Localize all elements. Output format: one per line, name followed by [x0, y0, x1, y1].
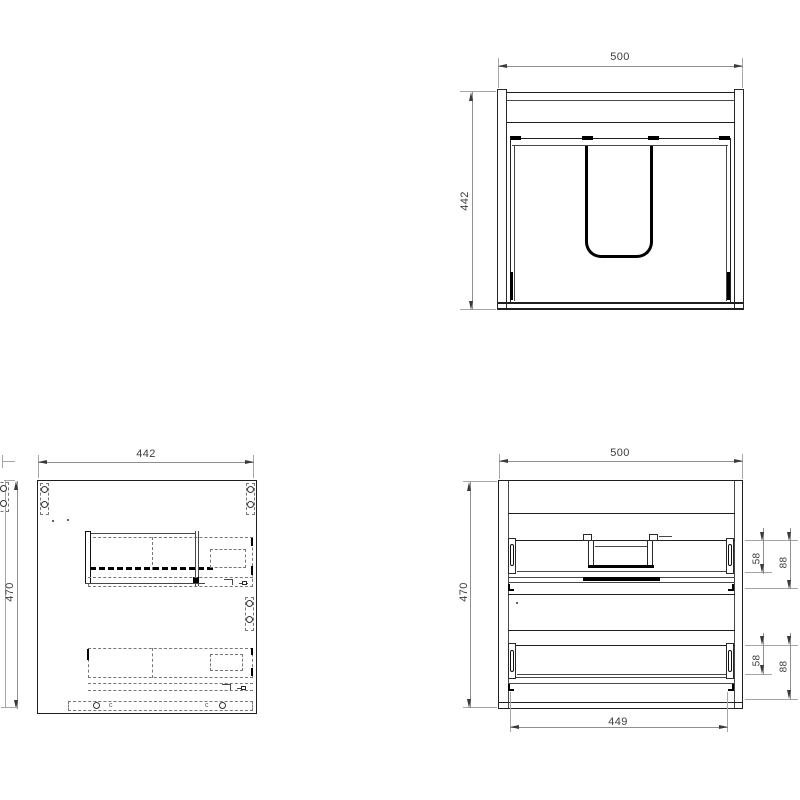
extension-line — [742, 58, 743, 88]
screw-icon — [93, 702, 100, 709]
arrowhead-icon — [469, 301, 473, 310]
runner-top-line — [91, 533, 195, 534]
screw-icon — [0, 500, 7, 507]
corner-mark — [727, 272, 730, 300]
runner-rear-fitting — [210, 654, 243, 671]
pilot-hole — [52, 520, 54, 522]
extension-line — [253, 455, 254, 478]
arrowhead-icon — [719, 725, 728, 729]
extension-tick — [1, 707, 15, 708]
dimension-line — [499, 461, 743, 462]
drawer-rail-line — [508, 582, 735, 583]
fitting-tab — [719, 136, 730, 140]
screw-icon — [247, 501, 254, 508]
screw-icon — [0, 485, 7, 492]
arrowhead-icon — [787, 636, 791, 645]
runner-mark — [251, 566, 253, 575]
cutout-post — [647, 540, 653, 567]
cutout-post — [588, 540, 594, 567]
runner-hardware — [232, 580, 233, 585]
siphon-cutout — [585, 146, 653, 258]
dim-label-height: 470 — [4, 573, 16, 611]
extension-line — [460, 91, 496, 92]
back-rail-line — [507, 92, 735, 93]
side-panel-section — [497, 89, 507, 310]
arrowhead-icon — [467, 482, 471, 491]
fitting-tab — [648, 136, 659, 140]
dimension-line — [38, 462, 254, 463]
runner-hardware — [241, 686, 246, 690]
runner-hardware — [230, 685, 231, 690]
bracket-foot — [508, 689, 514, 691]
cutout-bottom — [588, 565, 654, 568]
dim-label-drawer-span: 449 — [597, 716, 639, 728]
arrowhead-icon — [787, 580, 791, 589]
runner-base-hidden — [88, 577, 253, 578]
dimension-line — [472, 92, 473, 310]
dim-label-width: 500 — [600, 447, 640, 459]
drawer-top-line — [508, 540, 735, 541]
pilot-hole — [516, 602, 518, 604]
arrowhead-icon — [469, 92, 473, 101]
back-rail-line — [507, 122, 735, 123]
dim-label-depth: 442 — [459, 181, 471, 221]
screw-icon — [246, 600, 253, 607]
top-rail-line — [508, 513, 735, 514]
cutout-back-line — [595, 546, 647, 547]
arrowhead-icon — [14, 700, 18, 709]
dim-label-drawer-back: 58 — [752, 546, 763, 572]
screw-icon — [41, 486, 48, 493]
runner-hardware — [242, 581, 247, 585]
arrowhead-icon — [245, 460, 254, 464]
extension-line — [460, 309, 496, 310]
arrowhead-icon — [760, 636, 764, 645]
dimension-line — [17, 481, 18, 709]
divider-line — [508, 594, 735, 595]
extension-line — [499, 454, 500, 479]
drawer-back-bottom — [517, 674, 726, 675]
back-rail-line — [507, 100, 735, 101]
extension-tick — [2, 461, 15, 462]
dim-label-drawer-total: 88 — [779, 550, 790, 576]
divider-line — [508, 630, 735, 631]
dim-label-width: 500 — [600, 51, 640, 63]
dim-label-drawer-back: 58 — [752, 648, 763, 674]
extension-line — [745, 674, 772, 675]
runner-base-hidden — [88, 690, 253, 691]
runner-mark — [251, 668, 253, 676]
drawer-side-line — [514, 145, 515, 301]
bottom-panel-line — [499, 702, 742, 703]
bracket-slot — [510, 650, 514, 672]
arrowhead-icon — [14, 481, 18, 490]
fixing-marker: c — [109, 702, 113, 709]
drawer-side-line — [730, 138, 731, 302]
drawer-back-bottom — [517, 571, 726, 572]
extension-line — [498, 58, 499, 88]
runner-mark — [251, 648, 253, 655]
dimension-line — [470, 482, 471, 708]
runner-mark — [251, 538, 253, 546]
bracket-slot — [510, 544, 514, 566]
bracket-foot — [728, 589, 734, 591]
extension-line — [742, 454, 743, 479]
arrowhead-icon — [467, 699, 471, 708]
extension-tick — [2, 455, 3, 468]
extension-line — [38, 455, 39, 478]
screw-icon — [41, 501, 48, 508]
runner-rear-fitting — [210, 549, 246, 568]
screw-icon — [246, 616, 253, 623]
bracket-foot — [728, 689, 734, 691]
runner-mark — [87, 649, 89, 660]
drawer-edge-line — [510, 138, 730, 139]
screw-icon — [247, 486, 254, 493]
front-edge-line — [498, 302, 743, 304]
extension-line — [745, 572, 772, 573]
drawer-rail-line — [508, 677, 735, 678]
bracket-slot — [728, 544, 732, 566]
arrowhead-icon — [510, 725, 519, 729]
dim-label-depth: 442 — [126, 448, 166, 460]
screw-icon — [219, 702, 226, 709]
arrowhead-icon — [38, 460, 47, 464]
side-panel-section — [734, 89, 744, 310]
fitting-tab — [510, 136, 521, 140]
arrowhead-icon — [760, 532, 764, 541]
dim-label-drawer-total: 88 — [779, 654, 790, 680]
fitting-tab — [582, 136, 593, 140]
arrowhead-icon — [499, 459, 508, 463]
dim-label-height: 470 — [458, 573, 470, 611]
runner-divider-hidden — [152, 648, 153, 678]
arrowhead-icon — [787, 532, 791, 541]
drawer-top-line — [508, 645, 735, 646]
pilot-hole — [67, 519, 69, 521]
arrowhead-icon — [734, 64, 743, 68]
bracket-foot — [508, 589, 514, 591]
cabinet-outline — [37, 480, 257, 714]
bracket-slot — [728, 650, 732, 672]
dimension-line — [498, 66, 743, 67]
front-edge-line — [498, 308, 743, 310]
cutout-edge-line — [659, 536, 672, 537]
runner-base-line — [85, 583, 205, 584]
technical-drawing-canvas: 500 442 — [0, 0, 800, 800]
cutout-shadow-line — [583, 577, 660, 581]
runner-divider-hidden — [152, 537, 153, 570]
arrowhead-icon — [787, 690, 791, 699]
drawer-rail-line — [508, 683, 735, 684]
corner-mark — [510, 272, 513, 300]
fixing-marker: c — [205, 702, 209, 709]
arrowhead-icon — [498, 64, 507, 68]
arrowhead-icon — [734, 459, 743, 463]
